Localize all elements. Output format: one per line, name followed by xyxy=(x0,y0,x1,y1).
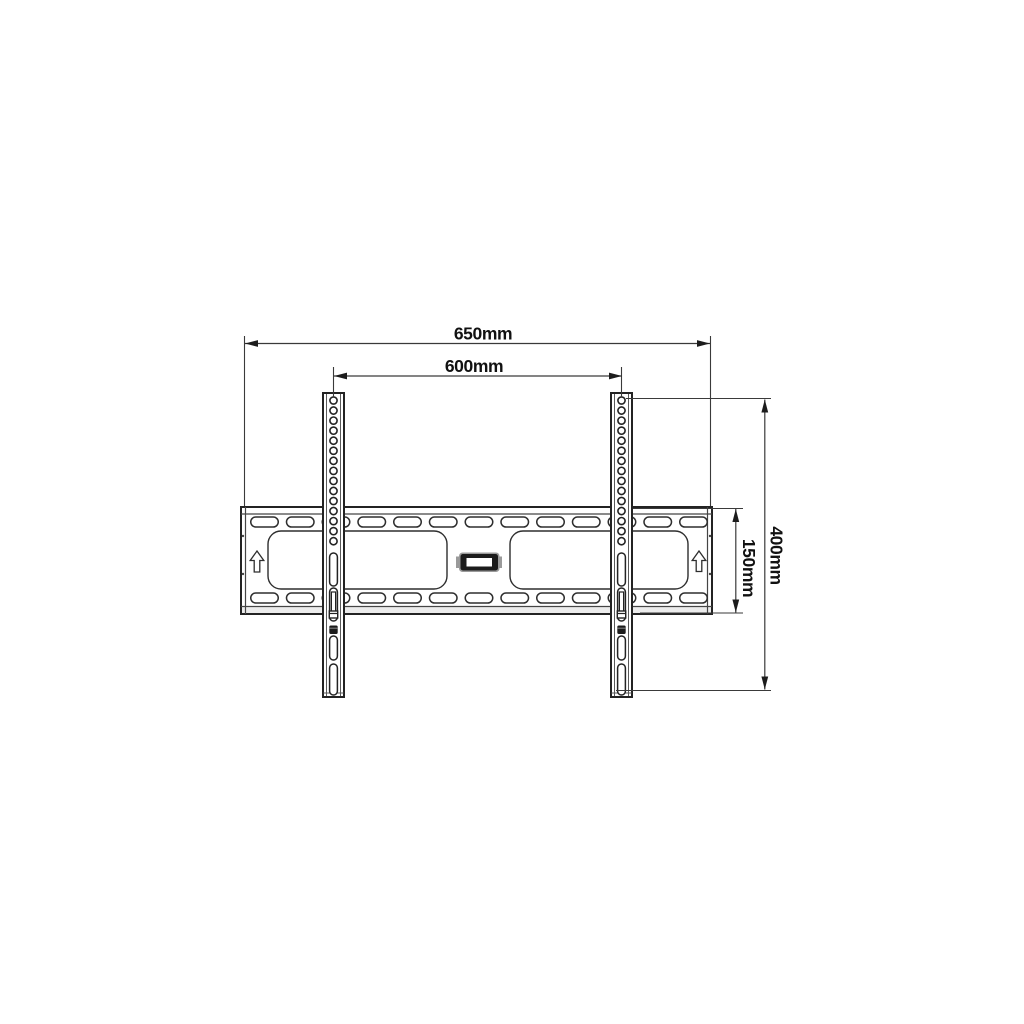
arrowhead-left-icon xyxy=(245,340,258,347)
vesa-hole xyxy=(330,507,337,514)
vesa-hole xyxy=(330,397,337,404)
rail-slot xyxy=(330,664,338,695)
plate-slot xyxy=(501,593,529,603)
vesa-hole xyxy=(330,518,337,525)
vesa-hole xyxy=(618,518,625,525)
plate-cutout-left xyxy=(268,531,447,589)
vesa-hole xyxy=(330,477,337,484)
dimension-rail-spacing: 600mm xyxy=(334,356,623,397)
vesa-rail-left xyxy=(323,393,344,697)
vesa-hole xyxy=(618,447,625,454)
plate-slot xyxy=(501,517,529,527)
vesa-hole xyxy=(618,467,625,474)
vesa-hole xyxy=(330,538,337,545)
vesa-hole xyxy=(330,497,337,504)
plate-slot xyxy=(465,517,493,527)
dim-label-150: 150mm xyxy=(739,539,759,597)
wall-plate xyxy=(241,507,712,614)
bolt xyxy=(329,626,337,635)
vesa-rail-right xyxy=(611,393,632,697)
plate-slot xyxy=(537,517,565,527)
vesa-hole xyxy=(618,538,625,545)
screw-shaft xyxy=(619,592,623,612)
screw-head xyxy=(329,611,337,618)
vesa-hole xyxy=(618,437,625,444)
plate-slot xyxy=(394,593,422,603)
vesa-hole xyxy=(618,507,625,514)
plate-slot xyxy=(358,593,386,603)
vesa-hole xyxy=(618,457,625,464)
flange-dot xyxy=(242,573,244,575)
arrowhead-right-icon xyxy=(609,373,622,380)
drawing-canvas: 650mm 600mm 150mm 400mm xyxy=(0,0,1024,1024)
plate-slot xyxy=(644,517,672,527)
flange-dot xyxy=(709,535,711,537)
plate-slot xyxy=(358,517,386,527)
dim-label-400: 400mm xyxy=(766,526,786,584)
vesa-hole xyxy=(618,407,625,414)
wall-plate-bottom-band xyxy=(242,607,711,613)
vesa-hole xyxy=(330,437,337,444)
plate-slot xyxy=(287,517,315,527)
plate-cutout-right xyxy=(510,531,688,589)
vesa-hole xyxy=(618,487,625,494)
bolt xyxy=(617,626,625,635)
vesa-hole xyxy=(618,477,625,484)
plate-slot xyxy=(644,593,672,603)
vesa-hole xyxy=(618,417,625,424)
vesa-hole xyxy=(618,497,625,504)
dim-label-600: 600mm xyxy=(445,356,503,376)
rail-slot xyxy=(618,553,626,586)
plate-slot xyxy=(430,517,458,527)
vesa-hole xyxy=(330,427,337,434)
arrowhead-left-icon xyxy=(334,373,347,380)
screw-head xyxy=(617,611,625,618)
arrowhead-up-icon xyxy=(761,400,768,413)
dim-label-650: 650mm xyxy=(454,324,512,344)
plate-slot xyxy=(430,593,458,603)
plate-slot xyxy=(680,593,708,603)
plate-slot xyxy=(573,593,601,603)
rail-slot xyxy=(330,553,338,586)
arrowhead-down-icon xyxy=(761,677,768,690)
vesa-hole xyxy=(330,407,337,414)
arrowhead-up-icon xyxy=(732,509,739,522)
plate-slot xyxy=(537,593,565,603)
vesa-hole xyxy=(330,447,337,454)
vesa-hole xyxy=(330,417,337,424)
dimension-overall-width: 650mm xyxy=(245,324,711,507)
vesa-hole xyxy=(618,427,625,434)
plate-slot xyxy=(287,593,315,603)
screw-shaft xyxy=(331,592,335,612)
plate-slot xyxy=(465,593,493,603)
vesa-hole xyxy=(618,397,625,404)
plate-slot xyxy=(394,517,422,527)
center-emblem xyxy=(456,553,502,573)
flange-dot xyxy=(242,535,244,537)
rail-slot xyxy=(618,636,626,660)
emblem-window xyxy=(467,558,493,567)
vesa-hole xyxy=(330,457,337,464)
flange-dot xyxy=(709,573,711,575)
plate-slot xyxy=(680,517,708,527)
vesa-hole xyxy=(330,467,337,474)
bracket-drawing: 650mm 600mm 150mm 400mm xyxy=(0,0,1024,1024)
rail-slot xyxy=(330,636,338,660)
plate-slot xyxy=(251,517,279,527)
arrowhead-down-icon xyxy=(732,600,739,613)
vesa-hole xyxy=(618,528,625,535)
plate-slot xyxy=(251,593,279,603)
plate-slot xyxy=(573,517,601,527)
vesa-hole xyxy=(330,487,337,494)
vesa-hole xyxy=(330,528,337,535)
arrowhead-right-icon xyxy=(697,340,710,347)
